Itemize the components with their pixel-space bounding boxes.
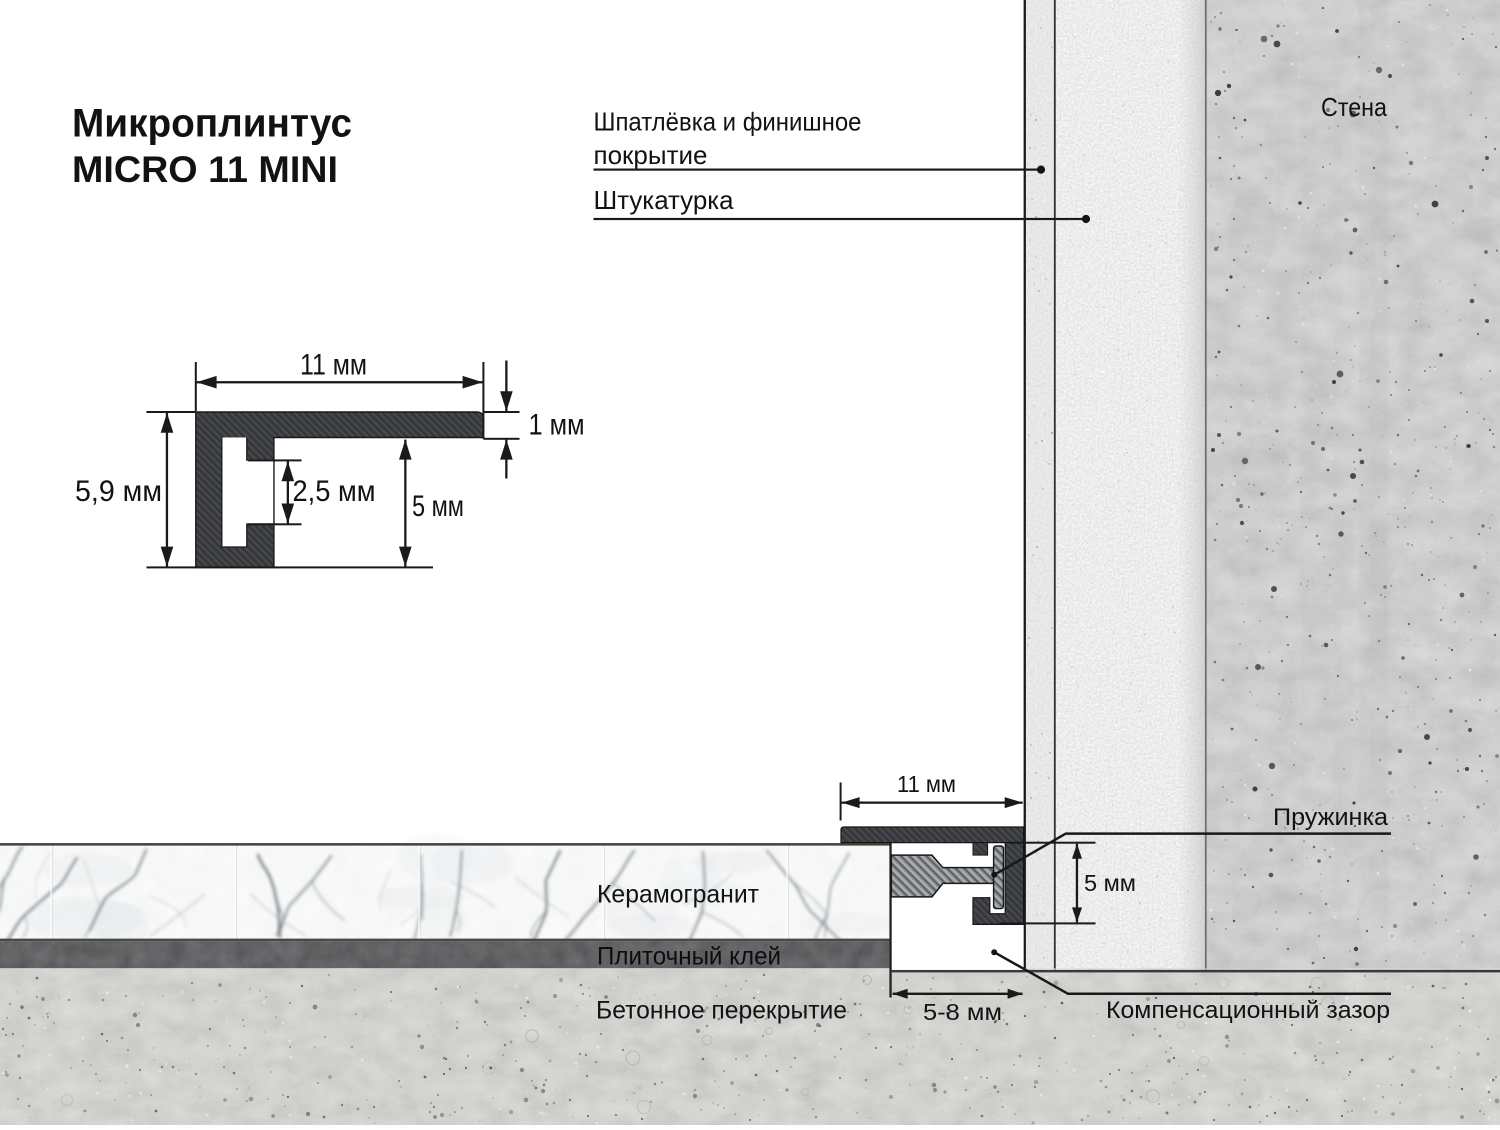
svg-text:11 мм: 11 мм xyxy=(897,771,956,797)
svg-text:покрытие: покрытие xyxy=(594,140,708,170)
svg-text:2,5 мм: 2,5 мм xyxy=(293,475,376,508)
svg-text:Штукатурка: Штукатурка xyxy=(594,185,735,215)
svg-text:Микроплинтус: Микроплинтус xyxy=(72,102,352,146)
svg-text:Стена: Стена xyxy=(1321,92,1387,122)
svg-text:Пружинка: Пружинка xyxy=(1273,804,1389,831)
svg-text:MICRO 11 MINI: MICRO 11 MINI xyxy=(72,149,338,190)
svg-text:5-8 мм: 5-8 мм xyxy=(923,999,1002,1025)
svg-text:1 мм: 1 мм xyxy=(529,409,585,442)
svg-text:5,9 мм: 5,9 мм xyxy=(75,475,162,508)
svg-text:11 мм: 11 мм xyxy=(300,349,367,382)
svg-text:Керамогранит: Керамогранит xyxy=(597,881,760,909)
svg-text:Плиточный клей: Плиточный клей xyxy=(597,943,781,971)
svg-text:5 мм: 5 мм xyxy=(412,490,464,523)
svg-text:Бетонное перекрытие: Бетонное перекрытие xyxy=(596,997,847,1025)
svg-text:Шпатлёвка и финишное: Шпатлёвка и финишное xyxy=(594,107,862,137)
svg-text:Компенсационный зазор: Компенсационный зазор xyxy=(1106,997,1390,1024)
svg-text:5 мм: 5 мм xyxy=(1084,870,1136,896)
